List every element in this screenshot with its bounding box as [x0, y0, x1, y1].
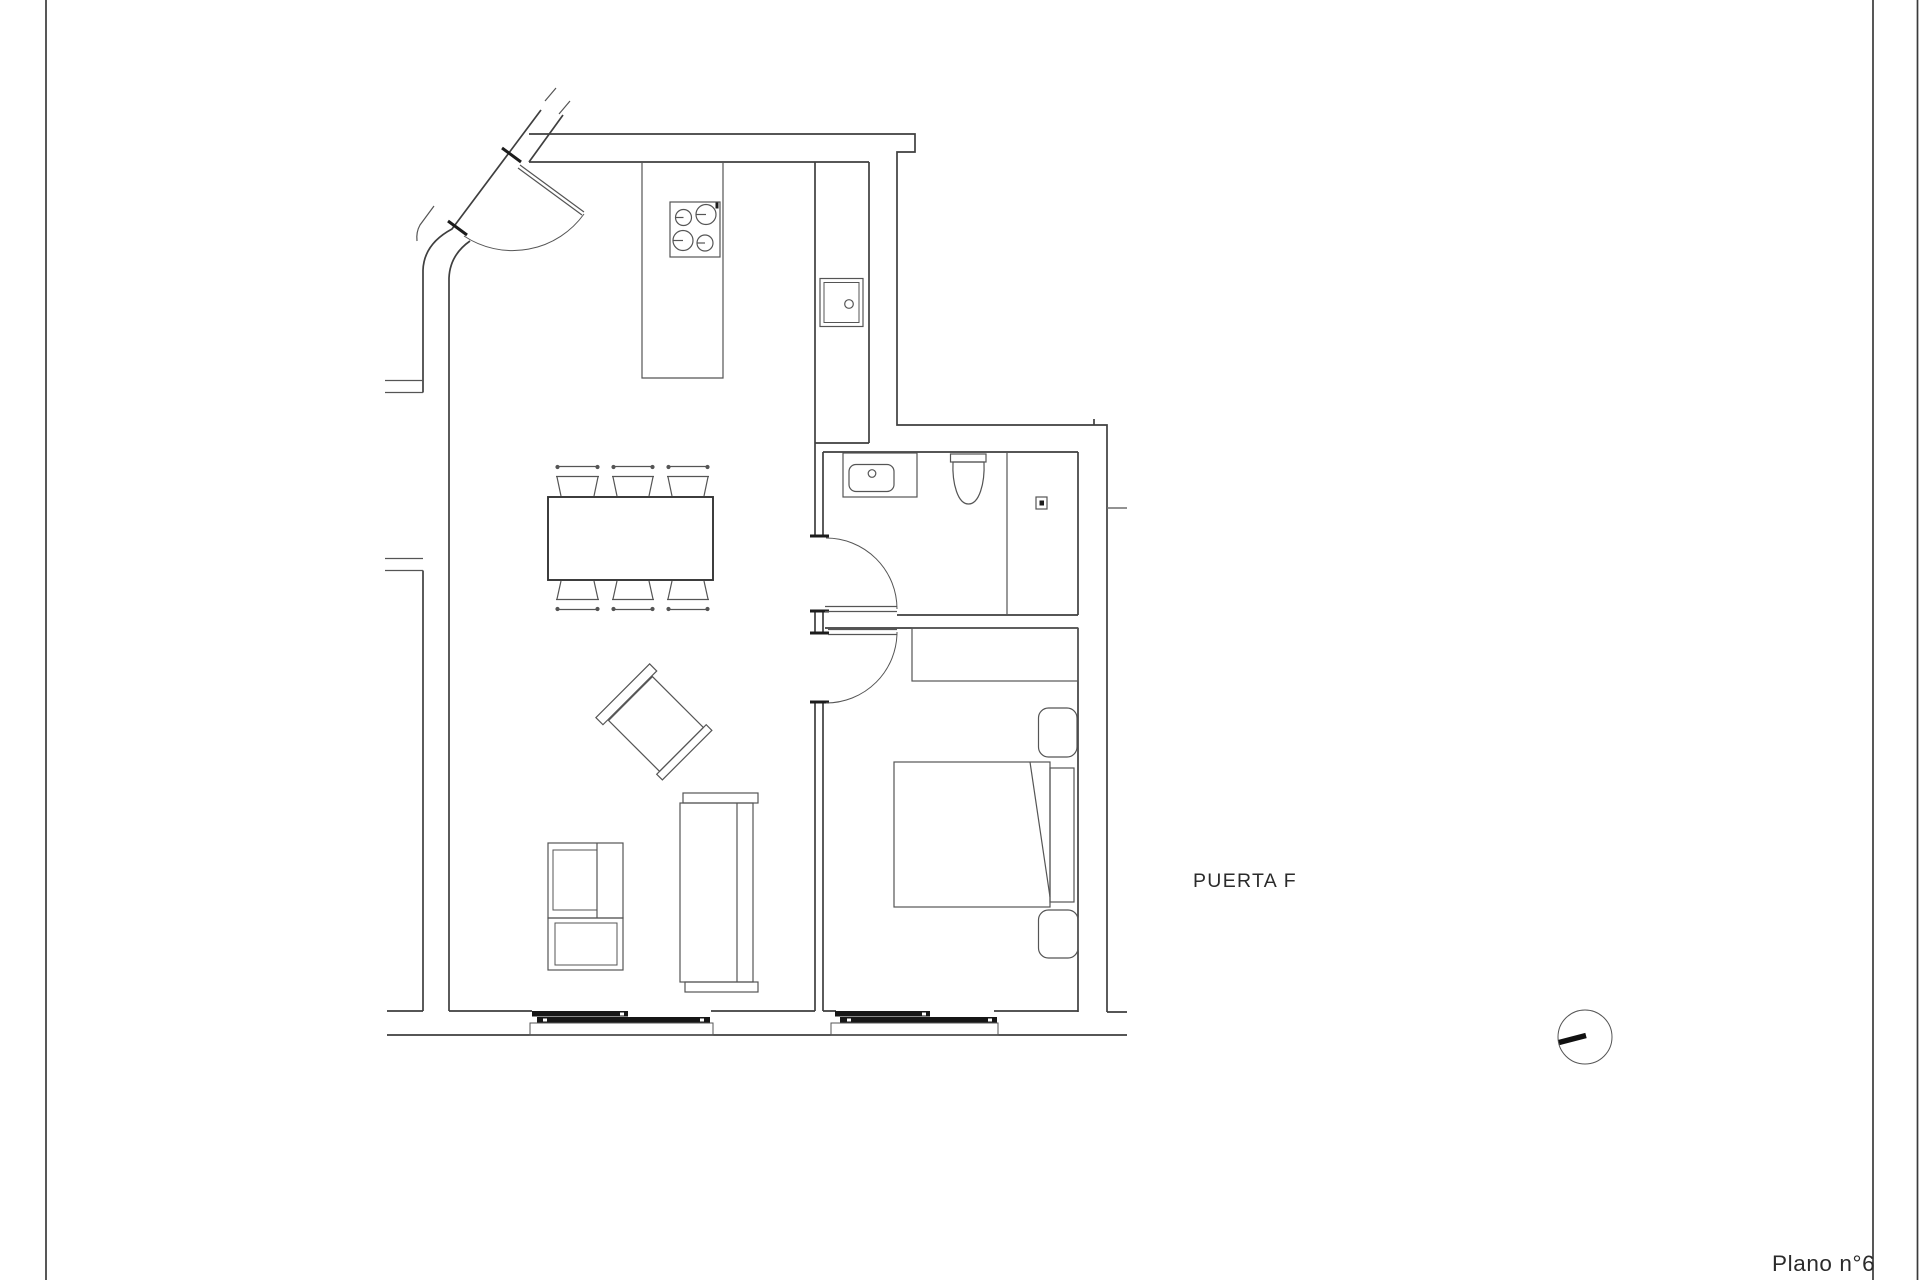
dining-chair	[666, 465, 709, 496]
left-window-jambs	[385, 381, 423, 571]
nightstand-bottom	[1039, 910, 1079, 958]
sofa	[680, 793, 758, 992]
living-room	[548, 465, 758, 992]
wall-entrance-diagonal-inner	[449, 115, 563, 1011]
bedroom-door-leaf	[828, 630, 897, 635]
plan-number-label: Plano n°6	[1772, 1251, 1875, 1276]
toilet-icon	[951, 454, 987, 504]
windows	[530, 1011, 998, 1035]
nightstand-top	[1039, 708, 1078, 757]
bedroom-door	[826, 630, 897, 704]
kitchen	[642, 162, 863, 378]
dining-table	[548, 497, 713, 580]
sheet-frame	[46, 0, 1918, 1280]
bedroom	[894, 628, 1078, 958]
walls	[385, 88, 1127, 1035]
wall-bottom	[387, 1011, 1127, 1035]
shower-drain-icon	[1036, 497, 1047, 509]
wall-break-stub-top	[545, 88, 570, 114]
wall-break-stub-left	[417, 206, 434, 241]
drawing-sheet: PUERTA F Plano n°6	[0, 0, 1920, 1280]
armchair	[596, 664, 714, 782]
floor-plan: PUERTA F Plano n°6	[0, 0, 1920, 1280]
stove-icon	[670, 202, 720, 257]
wall-bathroom	[823, 452, 1078, 615]
door-label: PUERTA F	[1193, 870, 1297, 892]
bed	[894, 762, 1074, 907]
bathroom-door-swing-arc	[826, 538, 897, 609]
wall-top-right-outer	[529, 134, 1107, 1012]
closet	[912, 628, 1078, 681]
bedroom-window	[831, 1011, 998, 1035]
kitchen-sink-icon	[820, 279, 863, 327]
tv-unit	[548, 843, 623, 970]
bathroom-door-leaf	[825, 607, 897, 612]
entrance-door	[464, 165, 584, 251]
entrance-door-jambs	[448, 148, 521, 235]
entrance-door-swing-arc	[464, 214, 584, 251]
doors	[464, 165, 897, 703]
living-window-sill	[530, 1023, 713, 1035]
bedroom-door-swing-arc	[826, 632, 897, 703]
door-jambs	[448, 148, 829, 702]
vanity-sink-icon	[843, 453, 917, 497]
bathroom-door	[825, 538, 897, 612]
dining-chair	[555, 465, 599, 496]
dining-chair	[555, 581, 599, 611]
bathroom-door-jambs	[810, 536, 829, 611]
living-room-window	[530, 1011, 713, 1035]
entrance-door-leaf	[518, 165, 584, 215]
wall-kitchen-counter	[815, 162, 869, 443]
orientation-icon	[1558, 1010, 1612, 1064]
bedroom-window-sill	[831, 1023, 998, 1035]
dining-chair	[611, 581, 654, 611]
bathroom	[843, 452, 1047, 615]
dining-chair	[666, 581, 709, 611]
dining-chair	[611, 465, 654, 496]
kitchen-island	[642, 162, 723, 378]
bedroom-door-jambs	[810, 633, 829, 702]
